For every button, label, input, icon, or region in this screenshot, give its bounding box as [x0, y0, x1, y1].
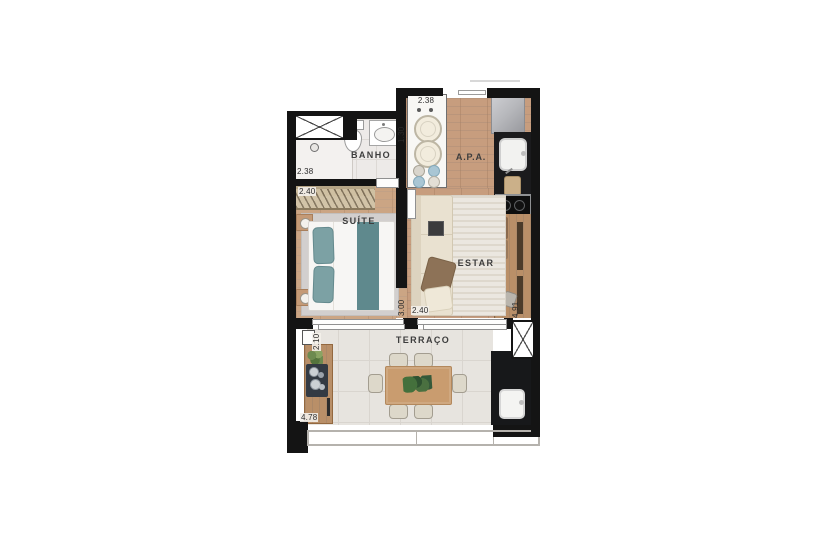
floor-plan: BANHO A.P.A. SUÍTE ESTAR TERRAÇO 2.38 1.… — [0, 0, 838, 555]
wall-left — [287, 111, 296, 453]
washer-door — [420, 121, 436, 137]
dim-terraco-depth: 2.10 — [312, 333, 321, 351]
grill-sink — [499, 389, 525, 419]
wall-suite-estar — [396, 188, 407, 288]
dim-terraco-width: 4.78 — [300, 413, 318, 422]
railing-post — [493, 437, 494, 445]
wall-slider-stub-left — [296, 318, 313, 329]
dim-suite-width: 2.40 — [298, 187, 316, 196]
centerpiece-plant — [402, 375, 432, 393]
pillow — [312, 227, 334, 265]
room-label-terraco: TERRAÇO — [378, 335, 468, 345]
washbasin-faucet — [382, 123, 385, 126]
sideboard-handle — [327, 398, 330, 416]
plate-icon — [318, 372, 324, 378]
wall-slider-stub-mid — [403, 318, 418, 329]
entry-door-leaf — [458, 90, 486, 95]
plant — [307, 349, 323, 365]
estar-rug — [447, 195, 506, 316]
room-label-suite: SUÍTE — [334, 216, 384, 226]
exterior-line — [470, 80, 520, 82]
dining-chair — [452, 374, 467, 393]
pillow — [312, 266, 334, 304]
wall-bottom-left-block — [287, 421, 308, 453]
knob-icon — [429, 108, 433, 112]
room-label-apa: A.P.A. — [448, 152, 494, 162]
dim-laundry-width: 2.38 — [408, 96, 444, 105]
dim-estar-width: 2.40 — [411, 306, 429, 315]
dim-banho-depth: 1.30 — [397, 127, 406, 143]
shaft-box — [511, 320, 535, 359]
washbasin — [369, 120, 399, 146]
railing-post — [538, 437, 540, 446]
basin-icon — [428, 176, 440, 188]
bench-shelf — [517, 222, 523, 270]
kitchen-sink — [499, 138, 527, 171]
cutting-board — [504, 176, 521, 196]
faucet-icon — [519, 400, 524, 405]
basin-icon — [413, 176, 425, 188]
railing-post — [416, 430, 417, 444]
washer-icon — [414, 115, 442, 143]
faucet-icon — [521, 151, 526, 156]
plate-icon — [319, 384, 325, 390]
dryer-door — [420, 146, 436, 162]
dim-estar-depth: 4.91 — [511, 302, 520, 318]
room-label-banho: BANHO — [345, 150, 397, 160]
knob-icon — [417, 108, 421, 112]
shower-drain-icon — [310, 143, 319, 152]
fridge — [491, 97, 525, 134]
shaft-box — [294, 114, 345, 140]
dim-banho-width: 2.38 — [297, 167, 313, 176]
dryer-icon — [414, 140, 442, 168]
sliding-door — [318, 324, 405, 330]
banho-door-leaf — [376, 178, 399, 188]
sofa — [411, 195, 453, 316]
sliding-door — [423, 324, 507, 330]
railing-line — [307, 430, 531, 432]
dining-chair — [368, 374, 383, 393]
tray — [428, 221, 444, 236]
serving-tray — [306, 364, 328, 397]
suite-door-leaf — [407, 189, 416, 219]
burner-icon — [514, 200, 525, 211]
washbasin-bowl — [374, 127, 395, 142]
bed — [308, 221, 395, 311]
railing-line — [307, 444, 540, 446]
wall-banho-bottom — [287, 179, 377, 186]
laundry-column — [407, 94, 447, 188]
bed-runner — [357, 222, 379, 310]
railing-post — [307, 430, 309, 446]
wall-right — [531, 88, 540, 437]
dim-suite-depth: 3.00 — [397, 300, 406, 316]
dining-chair — [389, 404, 408, 419]
dining-chair — [414, 404, 433, 419]
room-label-estar: ESTAR — [450, 258, 502, 268]
